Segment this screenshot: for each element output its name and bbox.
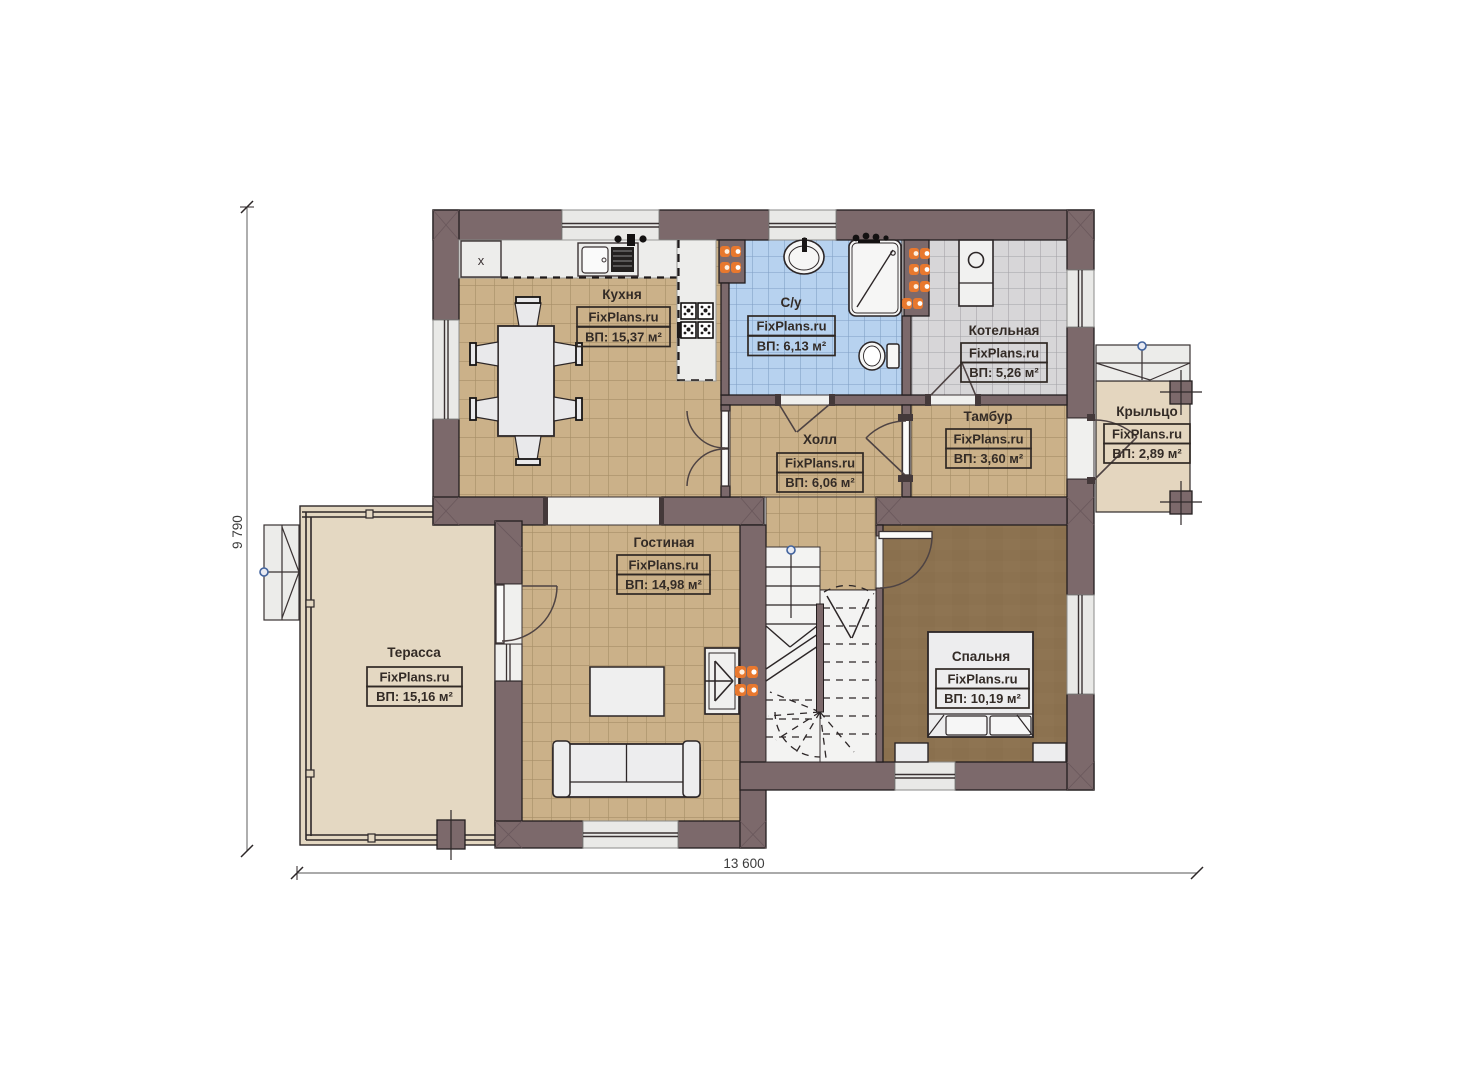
svg-text:x: x	[478, 253, 485, 268]
svg-text:Котельная: Котельная	[969, 323, 1040, 338]
svg-text:FixPlans.ru: FixPlans.ru	[785, 456, 855, 471]
svg-text:С/у: С/у	[780, 295, 802, 310]
svg-text:FixPlans.ru: FixPlans.ru	[379, 670, 449, 685]
svg-text:ВП: 15,37 м²: ВП: 15,37 м²	[585, 330, 662, 345]
svg-text:Тамбур: Тамбур	[964, 409, 1013, 424]
svg-text:ВП: 6,06 м²: ВП: 6,06 м²	[785, 475, 855, 490]
svg-text:ВП: 2,89 м²: ВП: 2,89 м²	[1112, 446, 1182, 461]
svg-text:13 600: 13 600	[723, 856, 764, 871]
svg-text:FixPlans.ru: FixPlans.ru	[756, 319, 826, 334]
svg-text:FixPlans.ru: FixPlans.ru	[588, 310, 658, 325]
svg-text:9 790: 9 790	[230, 515, 245, 549]
svg-text:FixPlans.ru: FixPlans.ru	[628, 558, 698, 573]
svg-text:FixPlans.ru: FixPlans.ru	[969, 346, 1039, 361]
svg-text:ВП: 10,19 м²: ВП: 10,19 м²	[944, 691, 1021, 706]
svg-text:FixPlans.ru: FixPlans.ru	[947, 672, 1017, 687]
svg-text:FixPlans.ru: FixPlans.ru	[953, 432, 1023, 447]
svg-text:Терасса: Терасса	[387, 645, 441, 660]
svg-text:Гостиная: Гостиная	[633, 535, 694, 550]
svg-text:ВП: 15,16 м²: ВП: 15,16 м²	[376, 689, 453, 704]
svg-text:FixPlans.ru: FixPlans.ru	[1112, 427, 1182, 442]
svg-text:ВП: 3,60 м²: ВП: 3,60 м²	[954, 451, 1024, 466]
svg-text:ВП: 6,13 м²: ВП: 6,13 м²	[757, 339, 827, 354]
svg-text:Крыльцо: Крыльцо	[1116, 404, 1177, 419]
svg-text:ВП: 5,26 м²: ВП: 5,26 м²	[969, 365, 1039, 380]
svg-text:Кухня: Кухня	[602, 287, 641, 302]
svg-text:Холл: Холл	[803, 432, 837, 447]
svg-text:ВП: 14,98 м²: ВП: 14,98 м²	[625, 577, 702, 592]
svg-text:Спальня: Спальня	[952, 649, 1010, 664]
